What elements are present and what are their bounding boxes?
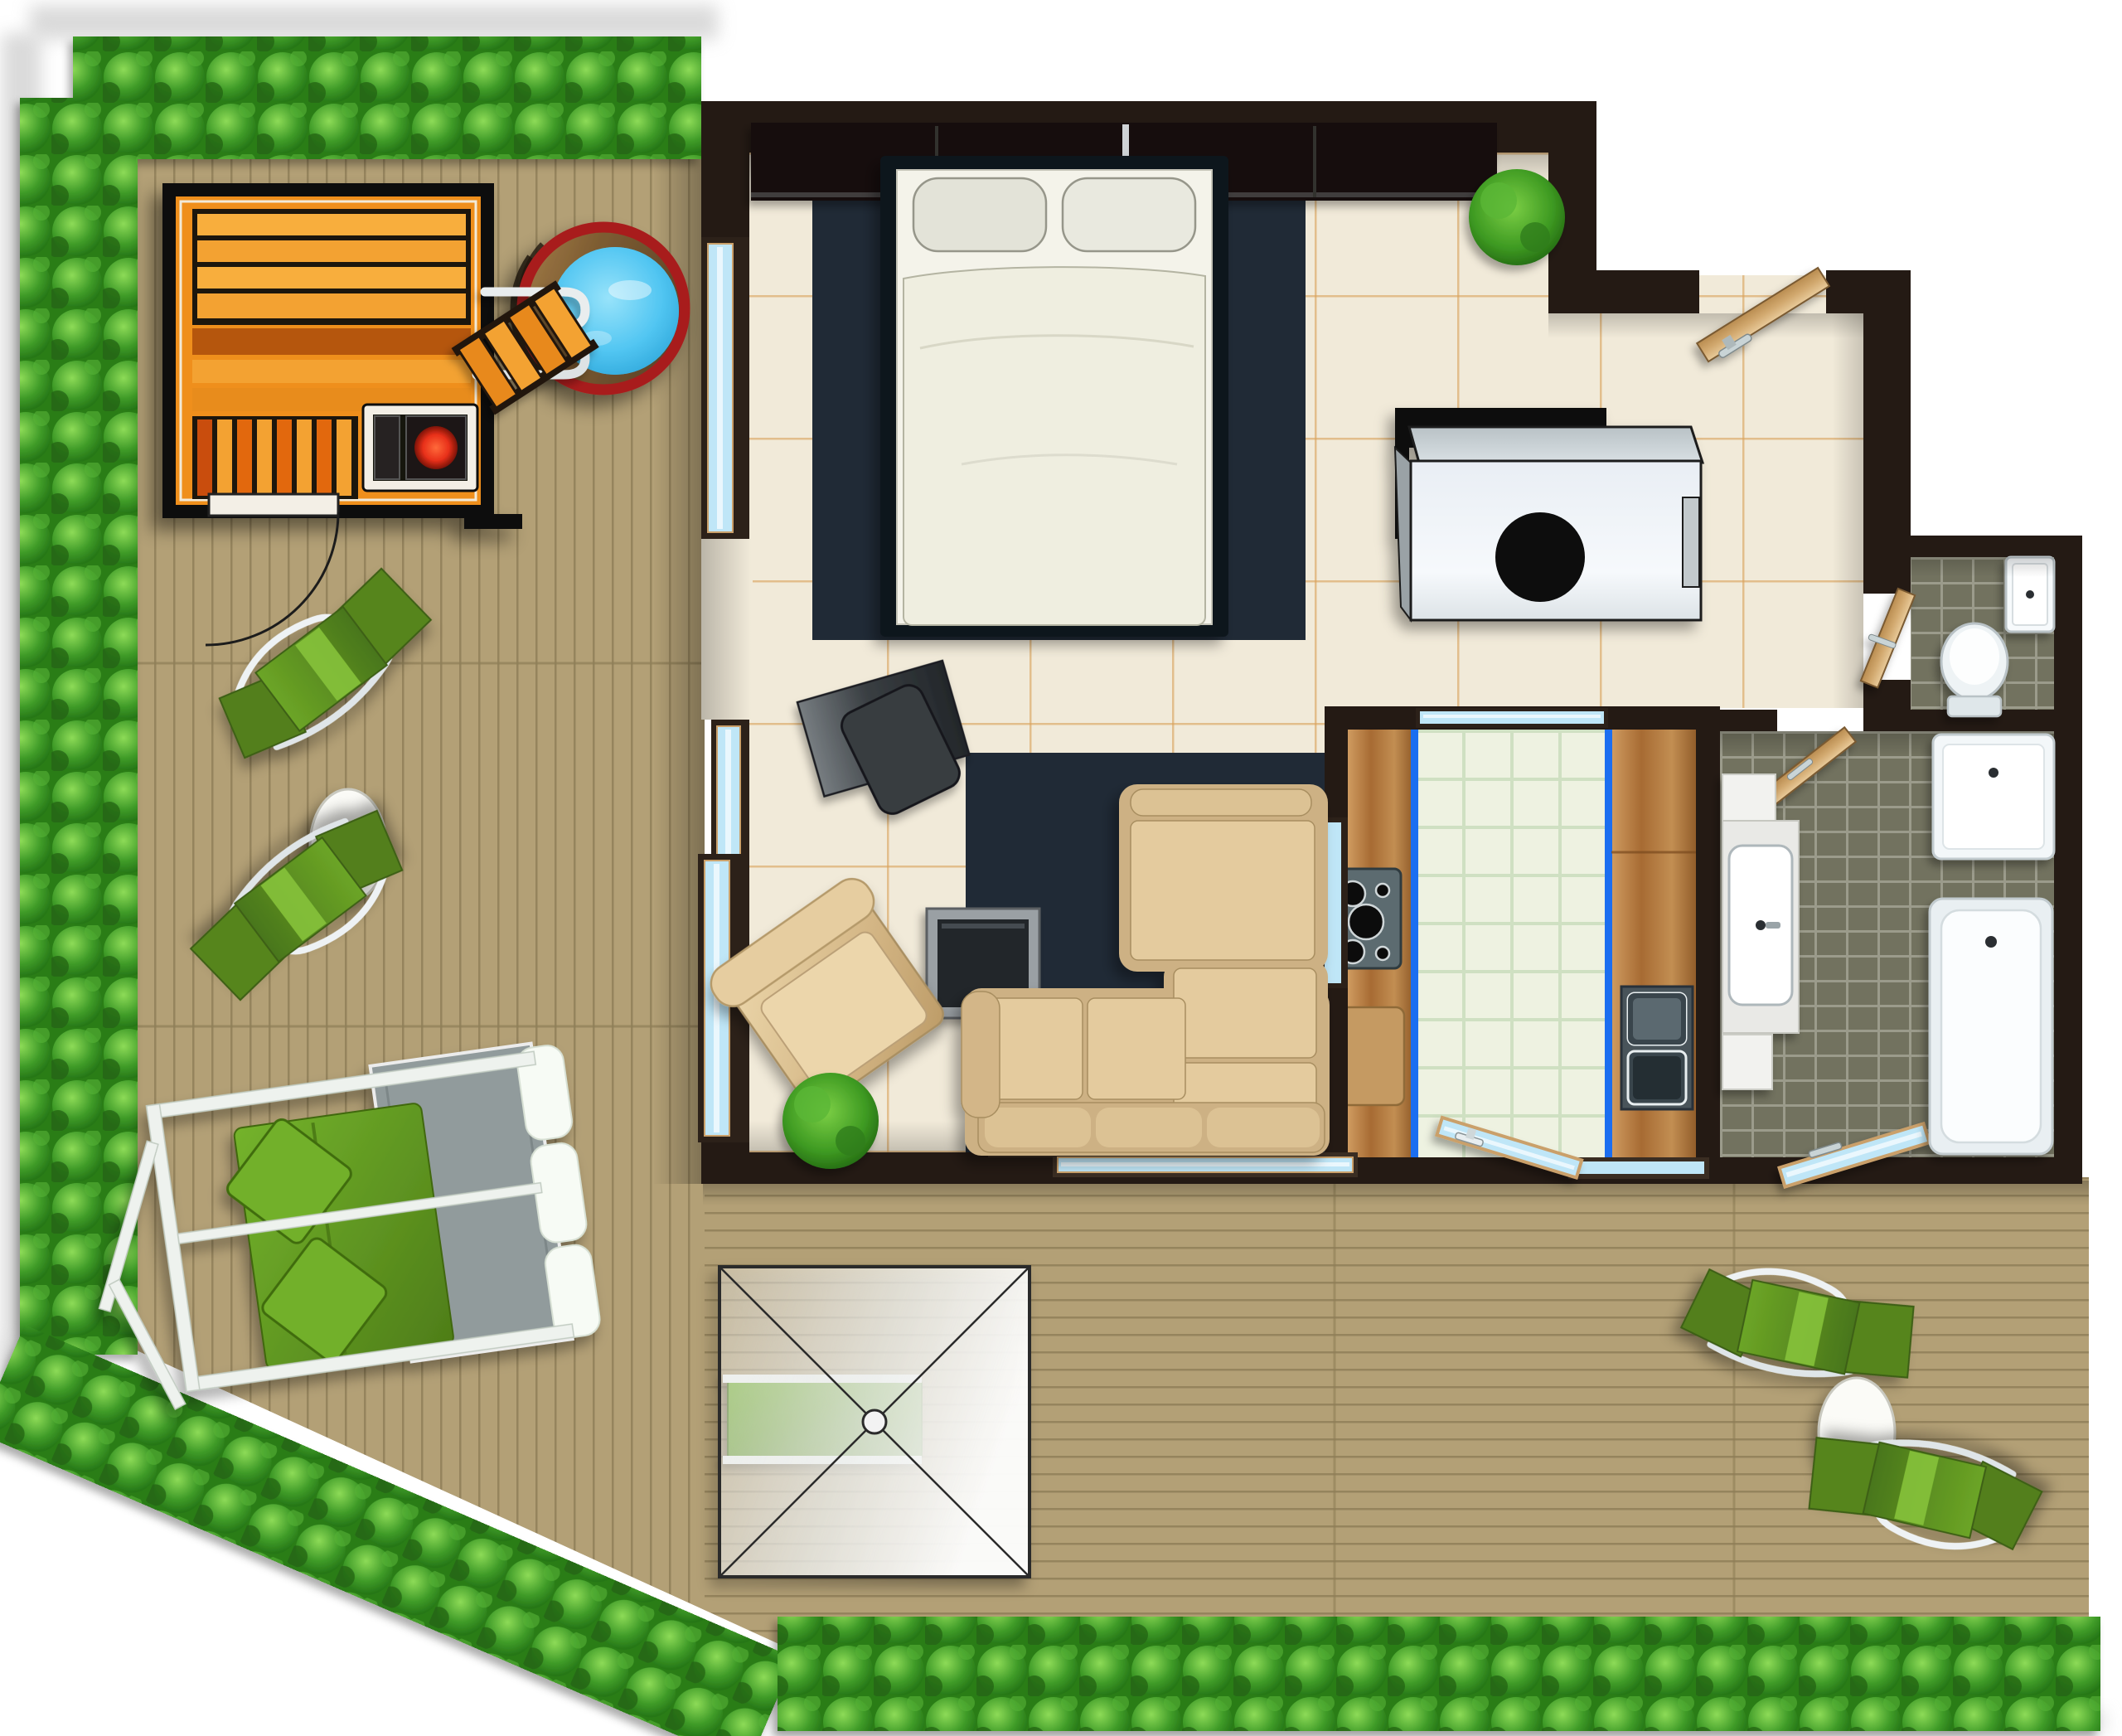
house-shadow-on-deck-south [703, 1181, 2089, 1205]
hedge-top [73, 36, 701, 159]
hedge-bottom [778, 1617, 2100, 1731]
wall-step [1548, 101, 1596, 275]
sauna-floor-planks [192, 416, 358, 499]
kitchen-blue-strip [1411, 730, 1418, 1157]
white-chest [1395, 408, 1703, 620]
bed-pillow-right [1063, 178, 1195, 251]
bed-duvet [904, 267, 1205, 625]
plant-bedroom [1469, 169, 1565, 265]
plant-living [782, 1073, 879, 1169]
parasol-area [719, 1267, 1030, 1577]
kitchen-blue-strip [1605, 730, 1612, 1157]
sauna-bench-dark [192, 328, 471, 355]
kitchen-sink [1621, 987, 1693, 1109]
sauna-foot [464, 514, 522, 529]
heater-coals [414, 426, 458, 469]
chest-opening [1495, 512, 1585, 602]
glass-kitchen-top [1416, 708, 1608, 728]
wall-bath-bottom [1717, 1157, 2082, 1184]
window-kitchen-south [1568, 1157, 1709, 1179]
wall-kitchen-right [1696, 706, 1720, 1184]
wc-door [1861, 589, 1915, 688]
double-bed [880, 156, 1228, 637]
sauna-heater [363, 405, 477, 491]
wall-outer-right [2054, 536, 2082, 1184]
floor-plan-canvas [0, 0, 2122, 1736]
bed-pillow-left [913, 178, 1046, 251]
wall-entry-left [1548, 270, 1699, 313]
window-living-south-2 [1053, 1152, 1358, 1177]
kitchen [1333, 730, 1698, 1157]
parasol [719, 1267, 1030, 1577]
hedge-left [20, 98, 138, 1355]
kitchen-floor [1414, 730, 1606, 1157]
window-west-a [701, 237, 749, 539]
wall-hall-right [1863, 270, 1911, 594]
wall-hall-stub [1717, 710, 1777, 731]
sauna-door [209, 494, 338, 516]
wall-left-upper [701, 101, 749, 260]
